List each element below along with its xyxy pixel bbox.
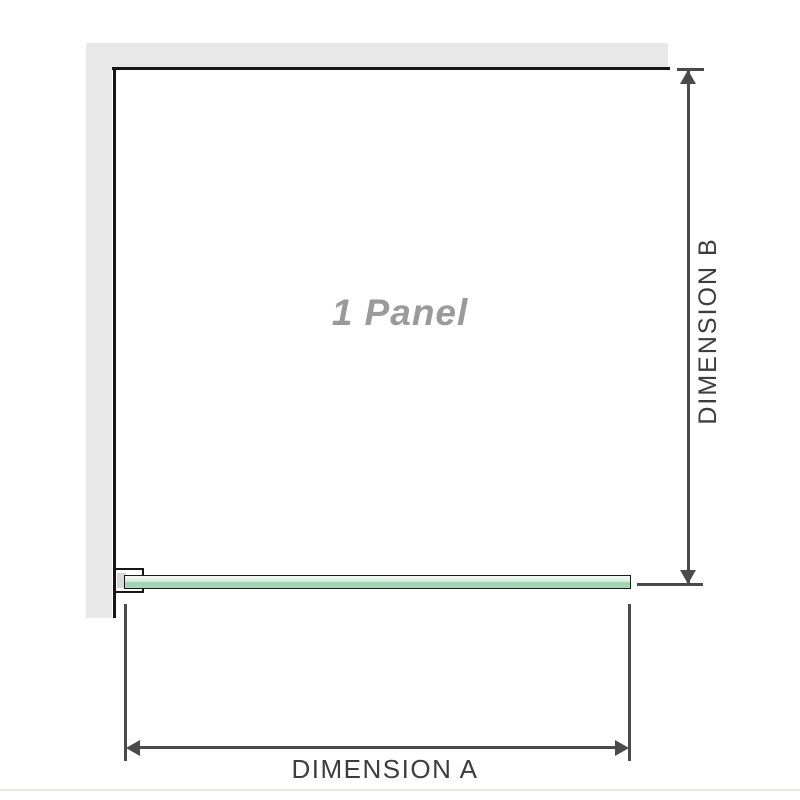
dimension-a-right-extension-line (628, 604, 631, 761)
dimension-a-left-extension-line (124, 604, 127, 761)
wall-top (86, 43, 668, 67)
dimension-b-line (687, 71, 690, 584)
dimension-a-label: DIMENSION A (240, 754, 530, 785)
arrow-right-icon (615, 740, 629, 756)
glass-panel-bar (124, 575, 631, 589)
wall-left (86, 43, 112, 618)
arrow-up-icon (680, 70, 696, 84)
wall-edge-left-line (113, 67, 116, 618)
wall-edge-top-line (112, 67, 670, 70)
arrow-down-icon (680, 570, 696, 584)
dimension-a-line (133, 746, 622, 749)
shower-panel-dimension-diagram: 1 Panel DIMENSION B DIMENSION A (0, 0, 800, 800)
bottom-divider (0, 789, 800, 791)
arrow-left-icon (126, 740, 140, 756)
dimension-b-label: DIMENSION B (694, 181, 720, 481)
panel-count-label: 1 Panel (112, 292, 688, 334)
